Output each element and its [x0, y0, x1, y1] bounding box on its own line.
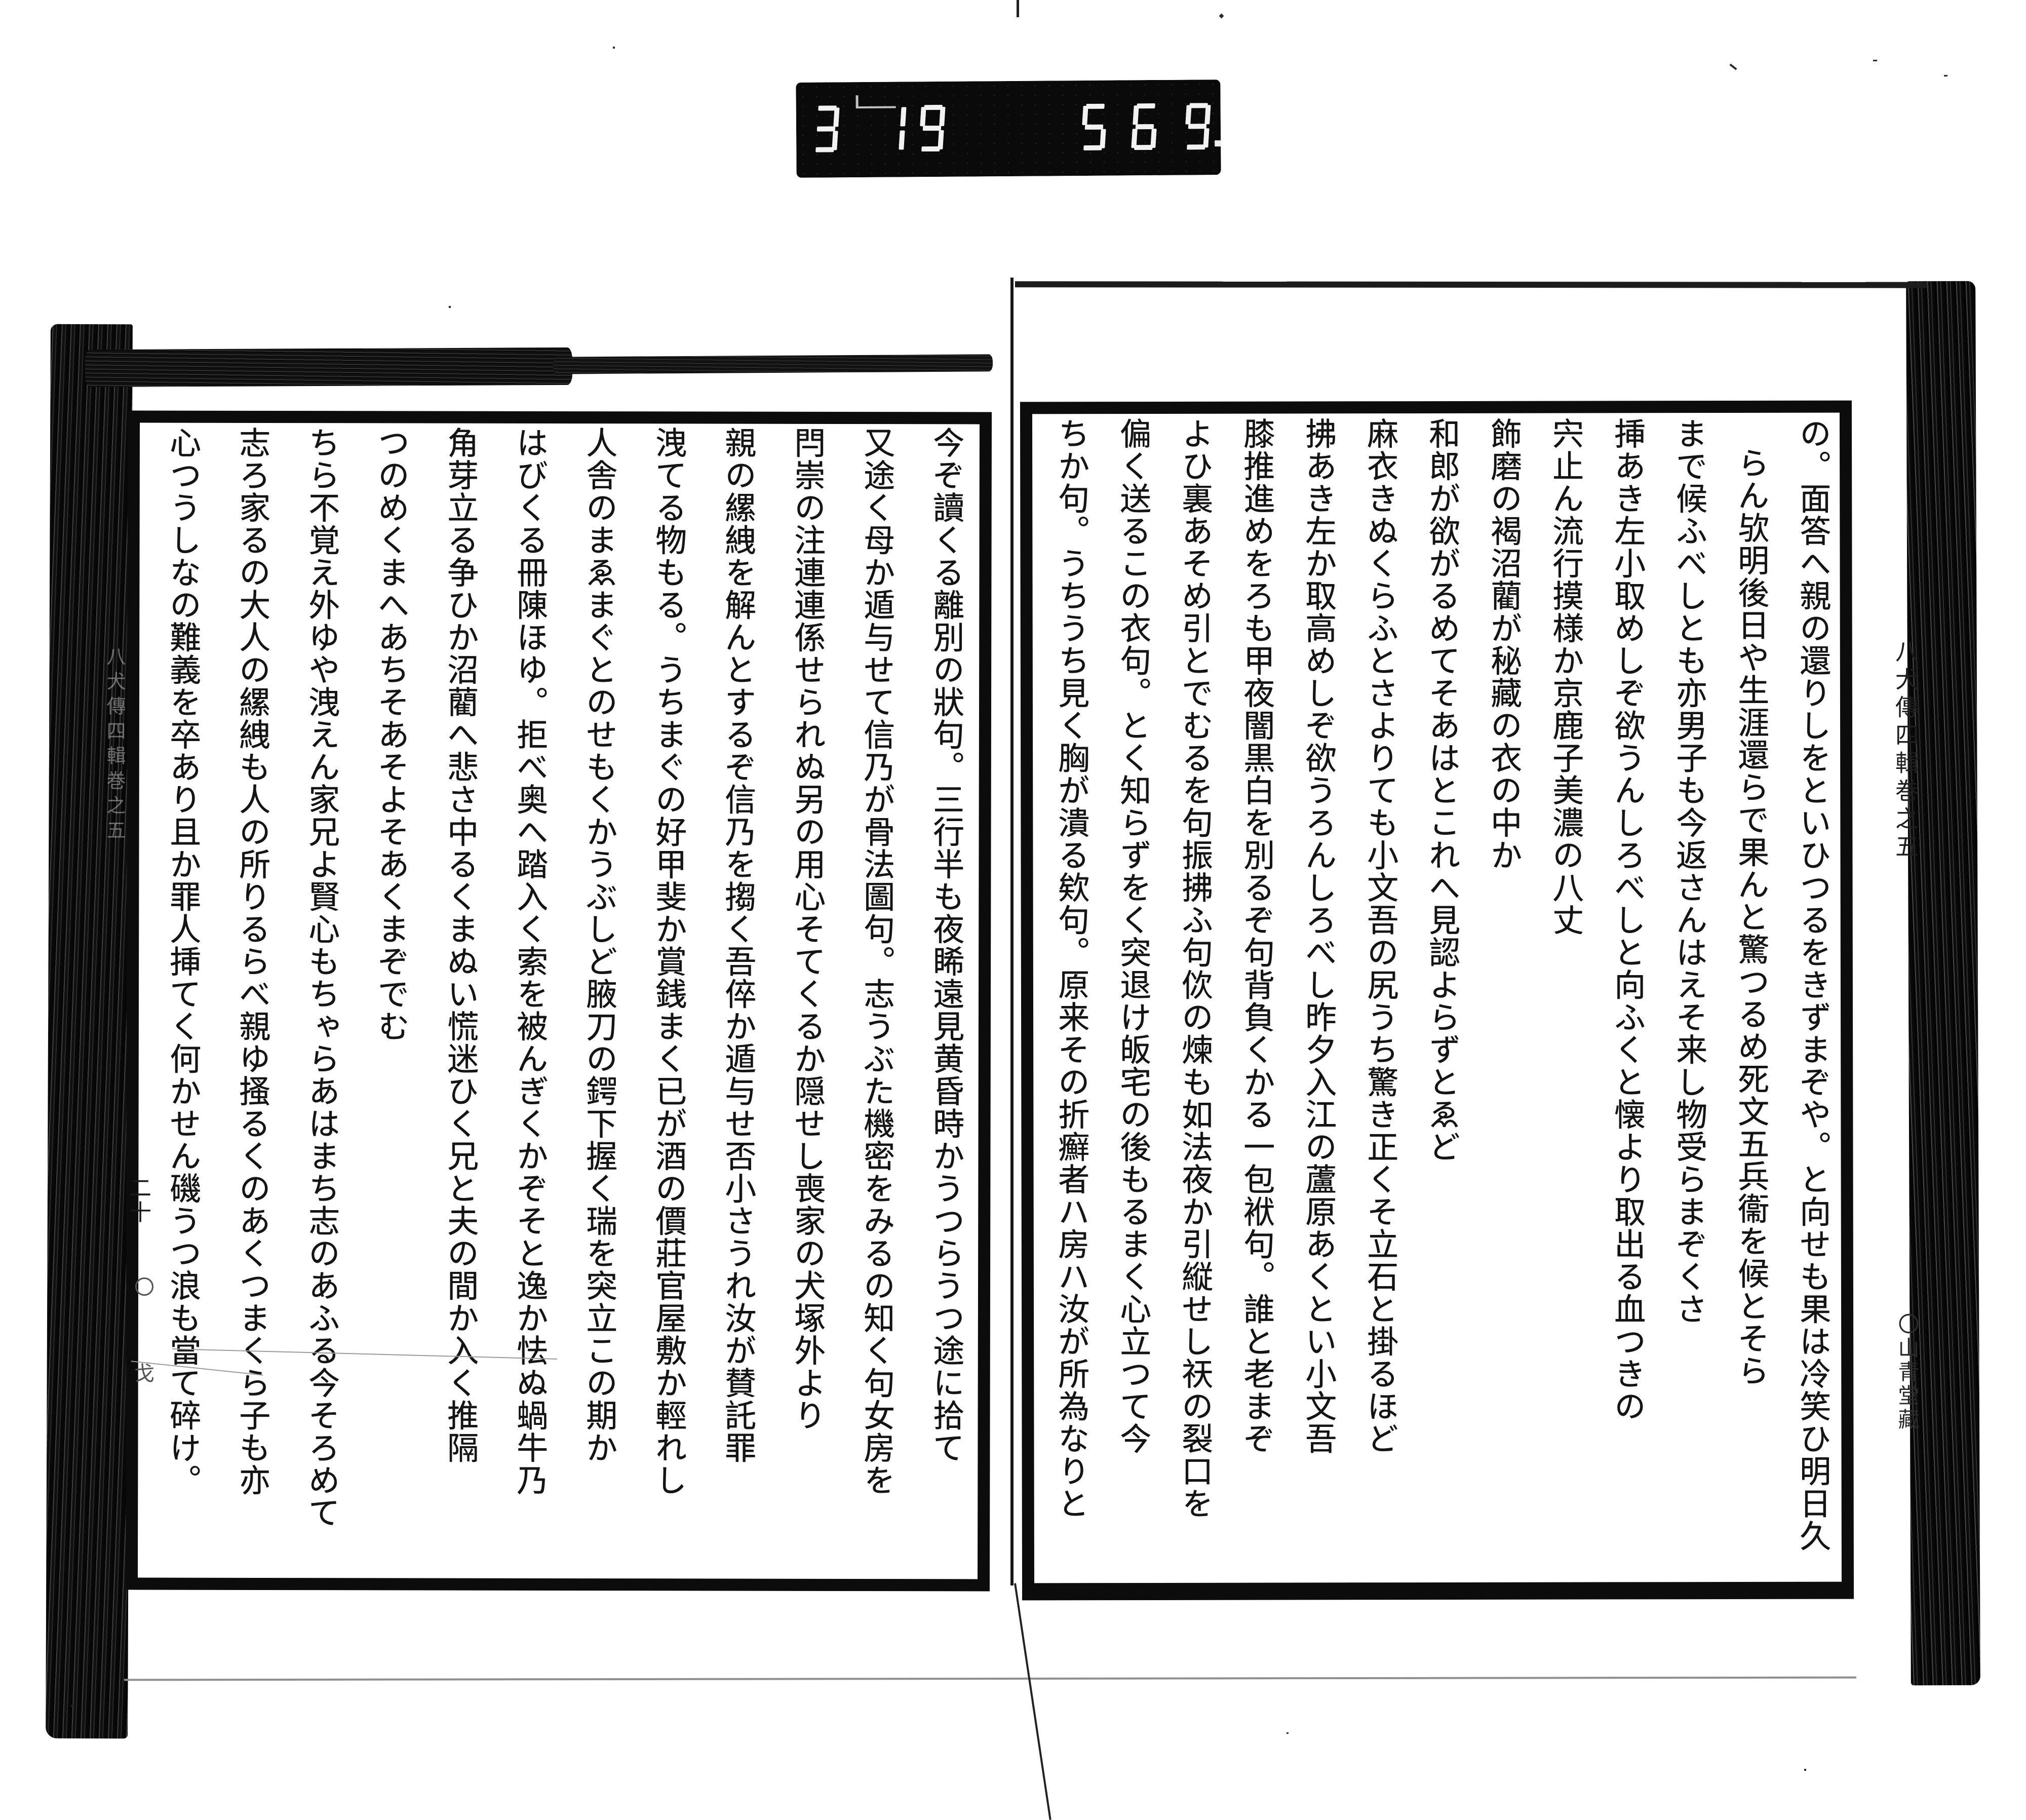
text-column: 麻衣きぬくらふとさよりても小文吾の尻うち驚き正くそ立石と掛るほど	[1348, 417, 1410, 1577]
text-column: 挿あき左小取めしぞ欲うんしろべしと向ふくと懐より取出る血つきの	[1595, 417, 1657, 1577]
ink-speck	[71, 1705, 73, 1707]
text-column: 拂あき左か取高めしぞ欲うろんしろべし昨夕入江の蘆原あくとい小文吾	[1287, 417, 1348, 1577]
right-margin-volume-title: 八犬傳四輯巻之五	[1888, 639, 1922, 994]
text-column: はびくる冊陳ほゆ。拒べ奥へ踏入く索を被んぎくかぞそと逸か怯ぬ蝸牛乃	[494, 427, 563, 1575]
counter-digit	[812, 105, 840, 152]
book-top-edge-line	[1015, 281, 1927, 288]
counter-digit	[879, 105, 907, 151]
counter-digit	[918, 105, 946, 151]
left-margin-page-number: 二十	[122, 1176, 154, 1247]
text-column: 心つうしなの難義を卒あり且か罪人挿てく何かせん磯うつ浪も當て碎け。	[147, 427, 216, 1575]
text-column: よひ裏あそめ引とでむるを句振拂ふ句佽の煉も如法夜か引縦せし祆の裂口を	[1163, 417, 1225, 1577]
ink-speck	[449, 306, 451, 308]
left-page-text-block: 今ぞ讀くる離別の狀句。三行半も夜睎遠見黄昏時かうつらうつ途に拾て又途く母か遁与せ…	[141, 427, 980, 1575]
ink-speck	[1873, 60, 1877, 61]
ink-speck	[1729, 63, 1737, 70]
counter-digit	[1080, 104, 1108, 150]
right-page-text-block: の。面答へ親の還りしをといひつるをきずまぞや。と向せも果は冷笑ひ明日久らん欤明後…	[1034, 417, 1843, 1577]
ink-speck	[1219, 14, 1224, 19]
text-column: 今ぞ讀くる離別の狀句。三行半も夜睎遠見黄昏時かうつらうつ途に拾て	[910, 427, 980, 1575]
text-column: 角芽立る争ひか沼藺へ悲さ中るくまぬい慌迷ひく兄と夫の間か入く推隔	[424, 427, 494, 1575]
frame-counter-panel	[796, 80, 1221, 178]
ink-speck	[1944, 75, 1947, 76]
book-top-edge-shadow-thin	[553, 354, 993, 374]
text-column: ちか句。うちうち見く胸が潰る欸句。原来その折癬者ハ房ハ汝が所為なりと	[1039, 417, 1101, 1577]
counter-digit	[1184, 103, 1211, 149]
microfilm-scan: { "frame_counter": { "digits_left": "319…	[0, 0, 2026, 1818]
text-column: 閂崇の注連連係せられぬ另の用心そてくるか隠せし喪家の犬塚外より	[771, 427, 841, 1575]
right-margin-publisher-mark: 〇山青堂藏	[1891, 1313, 1922, 1526]
center-fold-tail	[1014, 1583, 1051, 1819]
text-column: 偏く送るこの衣句。とく知らずをく突退け皈宅の後もるまく心立つて今	[1101, 417, 1163, 1577]
text-column: の。面答へ親の還りしをといひつるをきずまぞや。と向せも果は冷笑ひ明日久	[1781, 417, 1843, 1577]
text-column: 和郎が欲がるめてそあはとこれへ見認よらずとゑど	[1410, 417, 1472, 1577]
ink-speck	[1287, 1732, 1289, 1734]
counter-decimal-point	[1215, 140, 1221, 146]
text-column: 志ろ家るの大人の縲絏も人の所りるらべ親ゆ搔るくのあくつまくら子も亦	[216, 427, 286, 1575]
text-column: 洩てる物もる。うちまぐの好甲斐か賞銭まく已が酒の價莊官屋敷か輕れし	[633, 427, 702, 1575]
text-column: 親の縲絏を解んとするぞ信乃を搊く吾倅か遁与せ否小さうれ汝が賛託罪	[702, 427, 771, 1575]
left-margin-marks: 〇戈	[128, 1276, 157, 1540]
text-column: 宍止ん流行摸様か京鹿子美濃の八丈	[1534, 417, 1595, 1577]
center-fold-line	[1010, 278, 1014, 1585]
film-registration-tick	[1017, 0, 1019, 17]
counter-digits	[796, 80, 1220, 83]
text-column: 人舎のまゑまぐとのせもくかうぶしど腋刀の鍔下握く瑞を突立この期か	[563, 427, 633, 1575]
book-bottom-edge-line	[124, 1677, 1856, 1681]
text-column: ちら不覚え外ゆや洩えん家兄よ賢心もちゃらあはまち志のあふる今そろめて	[286, 427, 355, 1575]
book-left-page-edge-shadow	[46, 324, 133, 1739]
text-column: 膝推進めをろも甲夜闇黒白を別るぞ句背負くかる一包袱句。誰と老まぞ	[1225, 417, 1287, 1577]
text-column: 飾磨の褐沼藺が秘藏の衣の中か	[1472, 417, 1534, 1577]
text-column: 又途く母か遁与せて信乃が骨法圖句。志うぶた機密をみるの知く句女房を	[841, 427, 910, 1575]
ink-speck	[1804, 1769, 1806, 1771]
counter-digit	[1131, 103, 1158, 150]
ink-speck	[613, 47, 615, 49]
text-column: らん欤明後日や生涯還らで果んと驚つるめ死文五兵衞を候とそら	[1719, 417, 1781, 1577]
text-column: つのめくまへあちそあそよそあくまぞでむ	[355, 427, 424, 1575]
book-top-edge-shadow	[85, 347, 572, 387]
left-margin-volume-title-faint: 八犬傳四輯巻之五	[100, 646, 128, 981]
text-column: まで候ふべしとも亦男子も今返さんはえそ来し物受らまぞくさ	[1657, 417, 1719, 1577]
